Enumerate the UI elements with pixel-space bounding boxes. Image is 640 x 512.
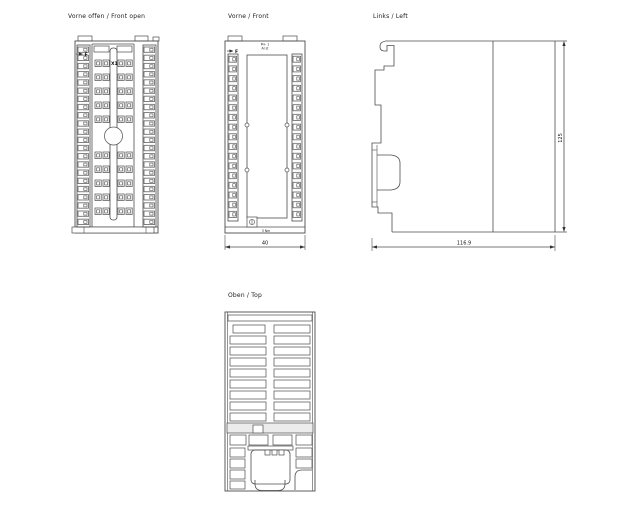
top-drawing [218,290,328,510]
module-print-line2: AI st [261,47,269,51]
connector-area [230,435,312,491]
top-rail [228,315,312,321]
front-open-drawing: F X1 [68,30,178,245]
din-rail-hook [372,41,394,232]
width-dim-value: 40 [262,241,268,247]
dimension-drawing-page: Vorne offen / Front open Vorne / Front L… [0,0,640,512]
fixing-screw: 3 Nm [247,217,270,233]
inner-terminal-block [92,44,134,227]
vent-slats [230,325,310,421]
left-side-drawing: 125 116.9 [368,30,578,260]
corner-piece [295,470,312,490]
mounting-hole [105,127,123,145]
arrow-right-icon [230,49,234,52]
front-title: Vorne / Front [228,13,269,20]
front-drawing: F M+ 1 AI st 3 Nm 40 [218,30,318,260]
connector-x1-label: X1 [111,61,118,67]
front-connector-bump [377,155,400,190]
f-marker-label: F [235,49,238,55]
labeling-door [245,55,289,218]
width-dimension: 40 [225,235,305,250]
screw-note: 3 Nm [262,229,271,233]
f-marker-label: F [85,52,88,58]
front-open-title: Vorne offen / Front open [68,13,145,20]
side-profile [372,41,567,232]
left-title: Links / Left [373,13,408,20]
led-columns [228,54,302,221]
bottom-latch [255,480,285,491]
depth-dim-value: 116.9 [457,241,471,247]
middle-band [227,423,313,433]
depth-dimension: 116.9 [372,235,555,251]
height-dimension: 125 [558,41,566,232]
height-dim-value: 125 [558,133,564,143]
